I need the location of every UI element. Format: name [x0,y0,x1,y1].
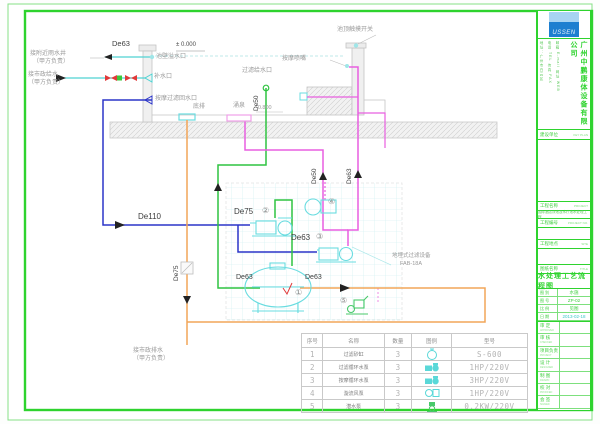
meta-value: 见图 [558,306,590,312]
field-en: PROJECT NO. [568,221,588,225]
label-rain-well-2: （甲方负责） [33,59,69,65]
sign-row-countersign: 会 签SIGNED [538,396,590,408]
sign-value [560,359,590,370]
sign-value [560,384,590,395]
logo-box: USSEN [538,11,590,39]
equip-row-qty: 3 [385,399,412,413]
company-info: 地址：广州市白云区电话 TEL 传真 FAX邮箱 E-mail 网址 WEB [540,41,561,127]
drawing-title-box: 水处理工艺流程图 [538,274,590,289]
drawing-title: 水处理工艺流程图 [538,271,590,291]
company-info-line: 邮箱 E-mail 网址 WEB [556,41,561,127]
pipe-label-de63-filter-in: De63 [236,274,253,281]
sign-row-project-head: 项目负责PROJECT [538,347,590,359]
equip-row-model: 1HP/220V [452,386,528,399]
field-value-site [538,249,590,265]
drawing-sheet: 接附近雨水井（甲方负责）接市政给水（甲方负责）De63± 0.000池壁溢水口补… [0,0,600,424]
label-fountain: 涌泉 [233,103,245,109]
meta-row-date: 日 期2013-02-18 [538,313,590,321]
equip-row-name: 过滤砂缸 [323,347,384,360]
level-label-zero: ± 0.000 [176,42,196,48]
titleblock: USSEN 地址：广州市白云区电话 TEL 传真 FAX邮箱 E-mail 网址… [536,11,592,410]
label-overflow-port: 池壁溢水口 [156,54,186,60]
company-info-line: 电话 TEL 传真 FAX [548,41,553,127]
field-en: SITE [581,242,588,246]
equip-row-name: 过滤循环水泵 [323,360,384,373]
sign-row-proofed: 校 对PROOFED [538,384,590,396]
equip-col-header: 型号 [452,333,528,347]
sign-label: 项目负责PROJECT [538,347,560,358]
sign-label: 设 计DESIGNED [538,359,560,370]
equip-row-model: 3HP/220V [452,373,528,386]
field-label: 工程编号 [540,220,558,226]
equip-row-model: 0.2KW/220V [452,399,528,413]
sign-row-approved: 审 定APPROVED [538,322,590,334]
label-rain-well: 接附近雨水井 [30,51,66,57]
equip-row-no: 3 [302,373,323,386]
pump-icon [412,373,452,386]
meta-row-number: 图 号ZP-02 [538,297,590,305]
sign-label: 审 核CHECKED [538,334,560,345]
sign-value [560,334,590,345]
equip-col-header: 数量 [385,333,412,347]
pipe-label-de63-pump3: De63 [291,234,310,242]
meta-value: ZP-02 [558,298,590,303]
sign-label: 校 对PROOFED [538,384,560,395]
equip-row-name: 按摩循环水泵 [323,373,384,386]
equip-row-no: 5 [302,399,323,413]
sign-row-designed: 设 计DESIGNED [538,359,590,371]
equip-row-model: 1HP/220V [452,360,528,373]
pipe-label-de75-pump2: De75 [234,208,253,216]
equip-row-no: 4 [302,386,323,399]
sign-value [560,396,590,407]
label-touch-switch: 池顶触摸开关 [337,27,373,33]
equip-row-qty: 3 [385,360,412,373]
equip-row-model: S-600 [452,347,528,360]
meta-row-scale: 比 例见图 [538,305,590,313]
meta-label: 图 号 [538,297,558,304]
meta-value: 2013-02-18 [558,314,590,319]
label-massage-nozzle: 按摩喷嘴 [282,56,306,62]
pipe-label-de63-overflow: De63 [112,40,130,48]
pipe-label-de50-riser: De50 [254,95,261,111]
equipment-table: 序号名称数量图例型号1过滤砂缸3S-6002过滤循环水泵31HP/220V3按摩… [301,333,528,413]
owner-en: KEY PLAN [573,133,588,137]
equip-row-name: 潜水泵 [323,399,384,413]
sign-label: 会 签SIGNED [538,396,560,407]
label-buried-filter-model: FAB-18A [400,262,422,268]
titleblock-fields: 工程名称PROJECT国际酒店泳池及水疗池水处理工程工程编号PROJECT NO… [538,202,590,265]
equip-col-header: 图例 [412,333,452,347]
filter-tank-icon [412,347,452,360]
logo-text: USSEN [552,29,575,37]
equip-row-qty: 3 [385,373,412,386]
company-info-line: 地址：广州市白云区 [540,41,545,127]
equip-num-4: ④ [328,198,335,206]
blower-icon [412,386,452,399]
pipe-label-de63-nozzle-riser: De63 [347,168,354,184]
sign-label: 制 图DRAWN [538,372,560,383]
label-city-water-2: （甲方负责） [28,80,64,86]
equip-col-header: 序号 [302,333,323,347]
field-label: 工程名称 [540,203,558,209]
equip-num-2: ② [262,207,269,215]
equip-num-3: ③ [316,233,323,241]
submersible-pump-icon [412,399,452,413]
sign-row-checked: 审 核CHECKED [538,334,590,346]
company-logo: USSEN [549,12,579,37]
label-filter-supply-port: 过滤给水口 [242,68,272,74]
meta-label: 比 例 [538,305,558,312]
equip-row-name: 漩流风泵 [323,386,384,399]
owner-label: 建设单位 [540,132,558,138]
titleblock-meta: 图 别水施图 号ZP-02比 例见图日 期2013-02-18 [538,289,590,321]
sign-row-drawn: 制 图DRAWN [538,372,590,384]
sign-value [560,322,590,333]
field-label: 工程地点 [540,241,558,247]
field-value-project-no [538,228,590,240]
field-row-project-no: 工程编号PROJECT NO. [538,219,590,228]
label-city-drain: 接市政排水 [133,348,163,354]
pump-icon [412,360,452,373]
equip-row-qty: 3 [385,386,412,399]
equip-row-no: 2 [302,360,323,373]
equip-col-header: 名称 [323,333,384,347]
equip-row-no: 1 [302,347,323,360]
pipe-label-de63-waste: De63 [305,274,322,281]
key-plan-box [538,140,590,202]
label-refill-port: 补水口 [154,74,172,80]
label-bottom-drain: 底排 [193,104,205,110]
label-city-drain-2: （甲方负责） [133,356,169,362]
label-buried-filter: 地埋式过滤设备 [392,254,431,260]
equip-num-5: ⑤ [340,297,347,305]
label-return-port: 按摩过滤回水口 [155,96,197,102]
pipe-label-de110: De110 [138,213,161,221]
sign-label: 审 定APPROVED [538,322,560,333]
owner-row: 建设单位 KEY PLAN [538,130,590,140]
field-row-site: 工程地点SITE [538,240,590,249]
field-en: PROJECT [574,204,588,208]
sign-value [560,347,590,358]
pipe-label-de50-fountain-riser: De50 [312,168,319,184]
sign-value [560,372,590,383]
equip-num-1: ① [295,289,302,297]
label-city-water: 接市政给水 [28,72,58,78]
meta-label: 日 期 [538,313,558,320]
company-section: 地址：广州市白云区电话 TEL 传真 FAX邮箱 E-mail 网址 WEB 广… [538,39,590,130]
pipe-label-de75-drain: De75 [174,265,181,281]
field-value-project-name: 国际酒店泳池及水疗池水处理工程 [538,211,590,219]
titleblock-signs: 审 定APPROVED审 核CHECKED项目负责PROJECT设 计DESIG… [538,321,590,409]
equip-row-qty: 3 [385,347,412,360]
company-name: 广州中鹏康体设备有限公司 [568,41,588,127]
